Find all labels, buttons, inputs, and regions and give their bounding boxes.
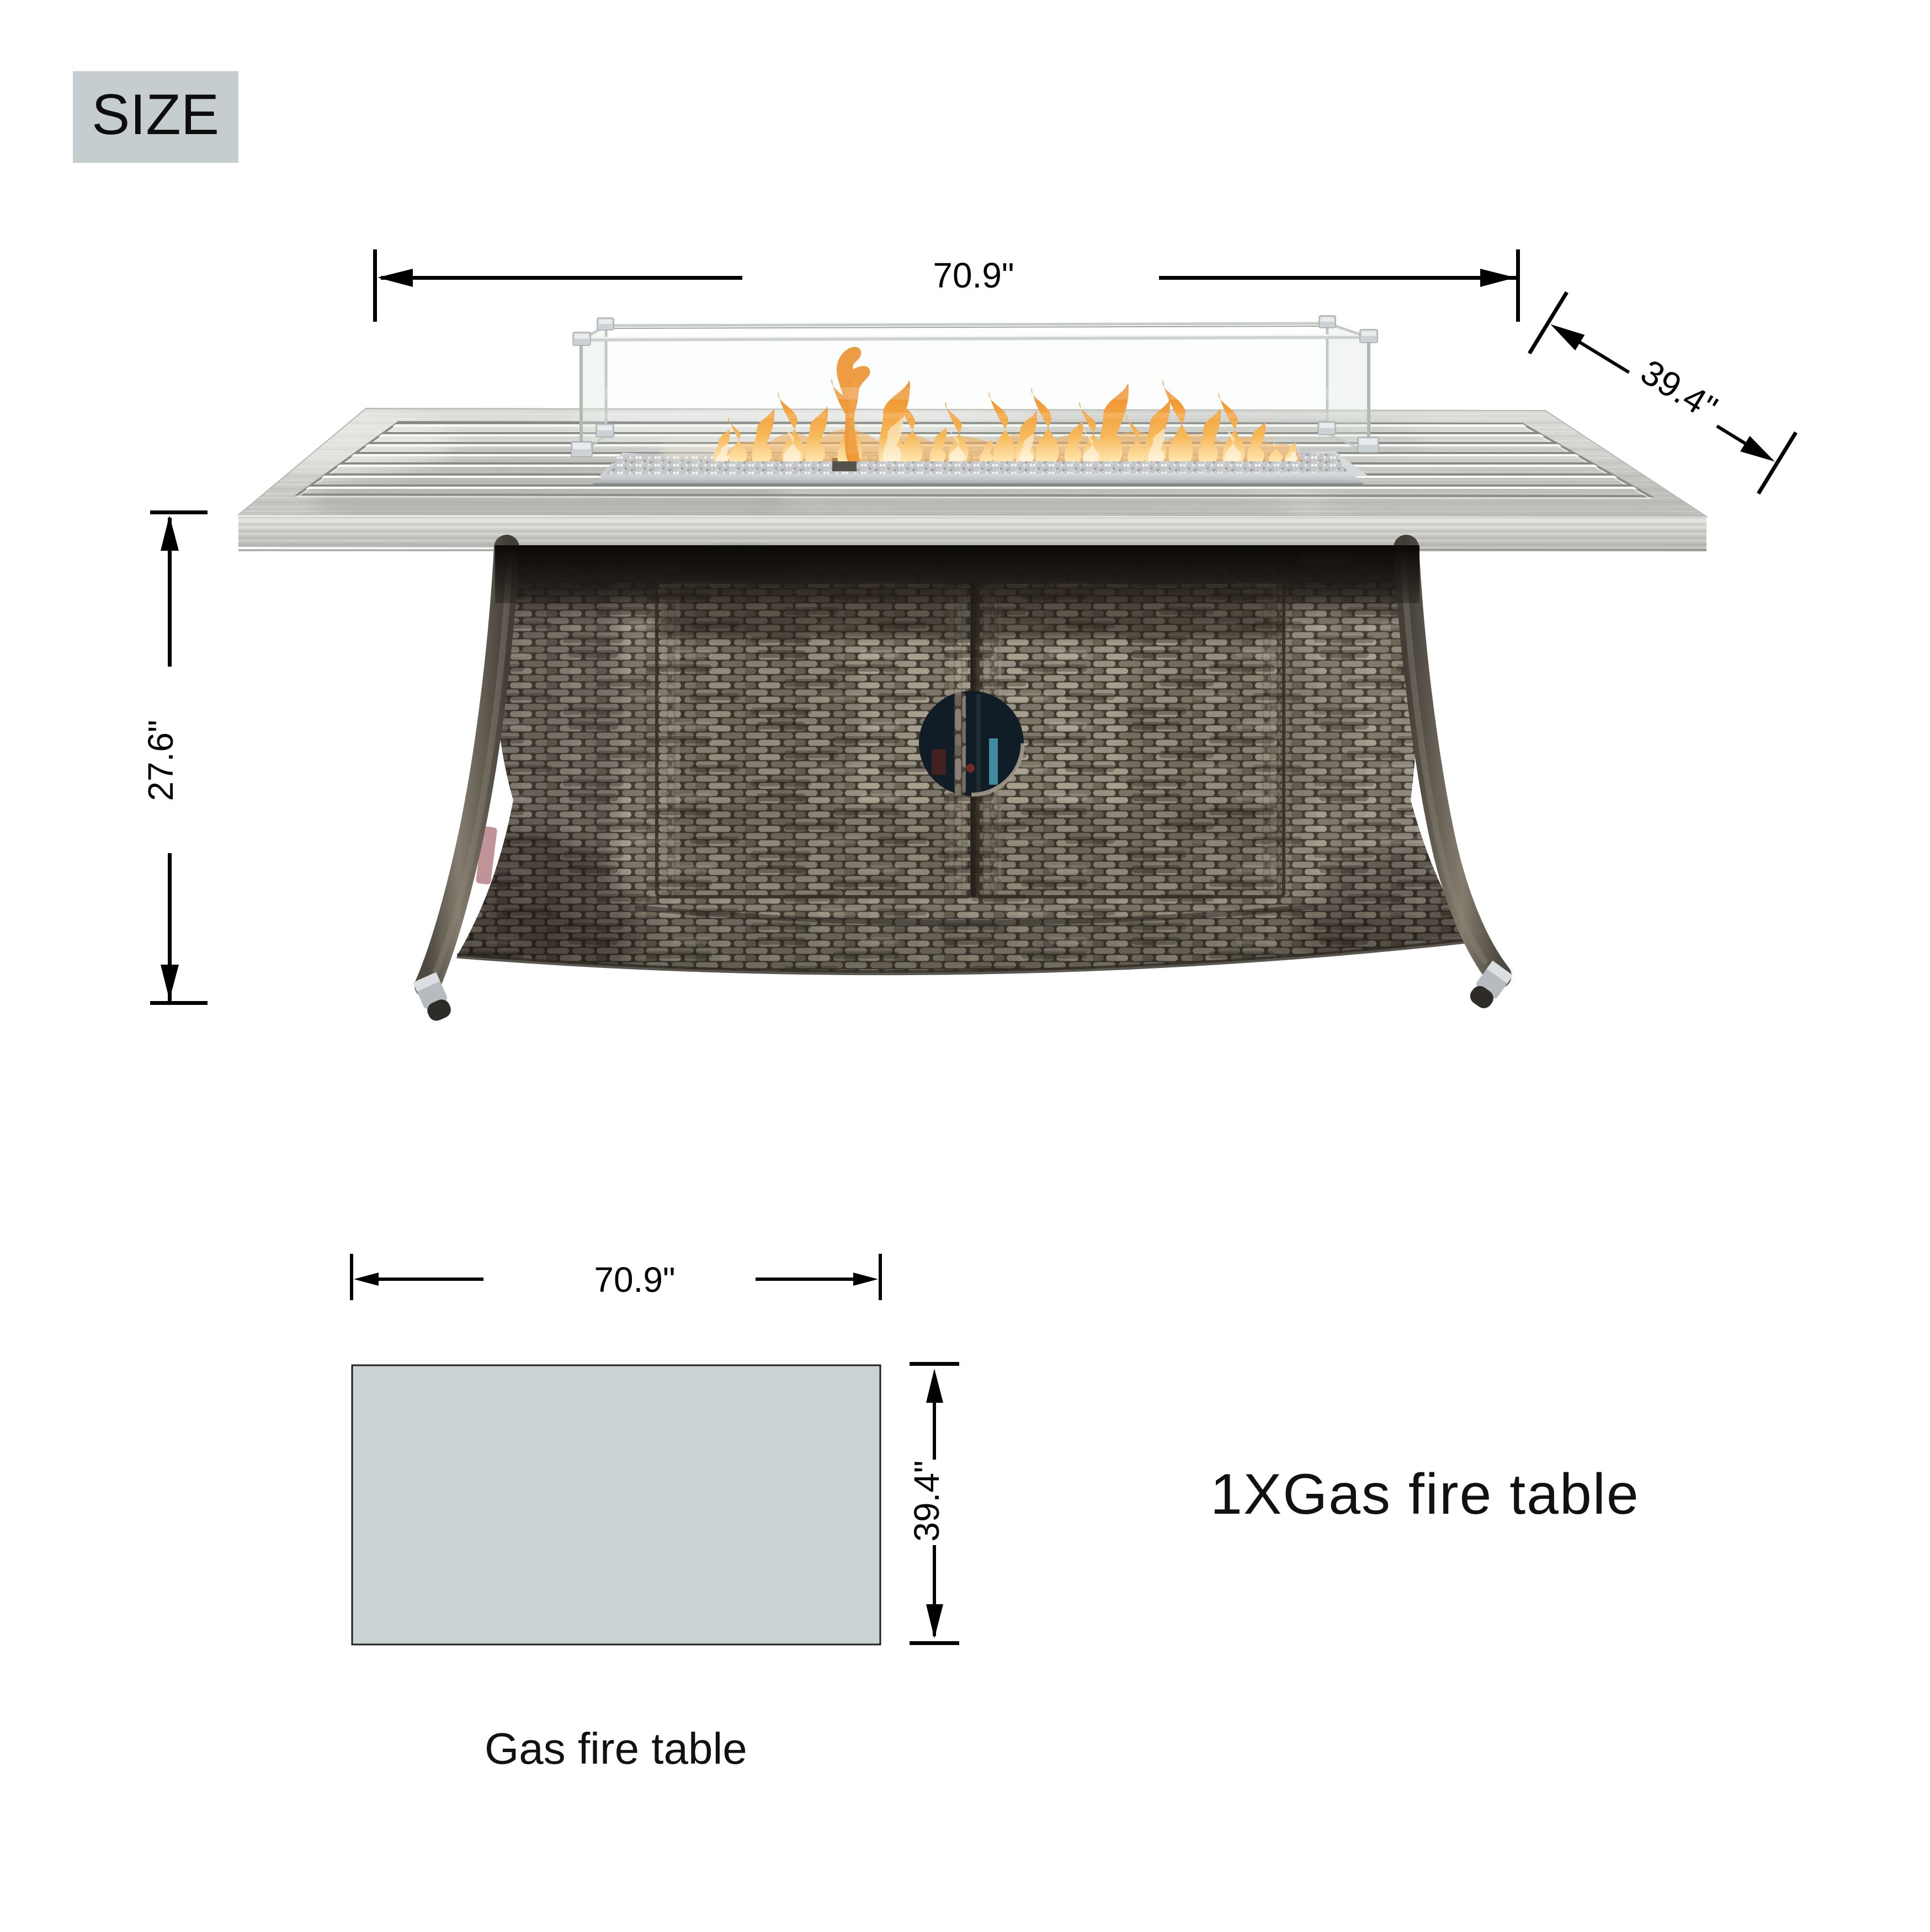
svg-text:Gas fire table: Gas fire table — [485, 1724, 747, 1773]
svg-text:SIZE: SIZE — [92, 83, 219, 147]
svg-text:39.4": 39.4" — [907, 1460, 947, 1541]
svg-text:70.9": 70.9" — [933, 256, 1014, 295]
svg-text:70.9": 70.9" — [594, 1260, 675, 1300]
svg-text:27.6": 27.6" — [141, 720, 180, 801]
svg-text:39.4": 39.4" — [1634, 352, 1724, 428]
svg-text:1XGas fire table: 1XGas fire table — [1210, 1462, 1640, 1526]
